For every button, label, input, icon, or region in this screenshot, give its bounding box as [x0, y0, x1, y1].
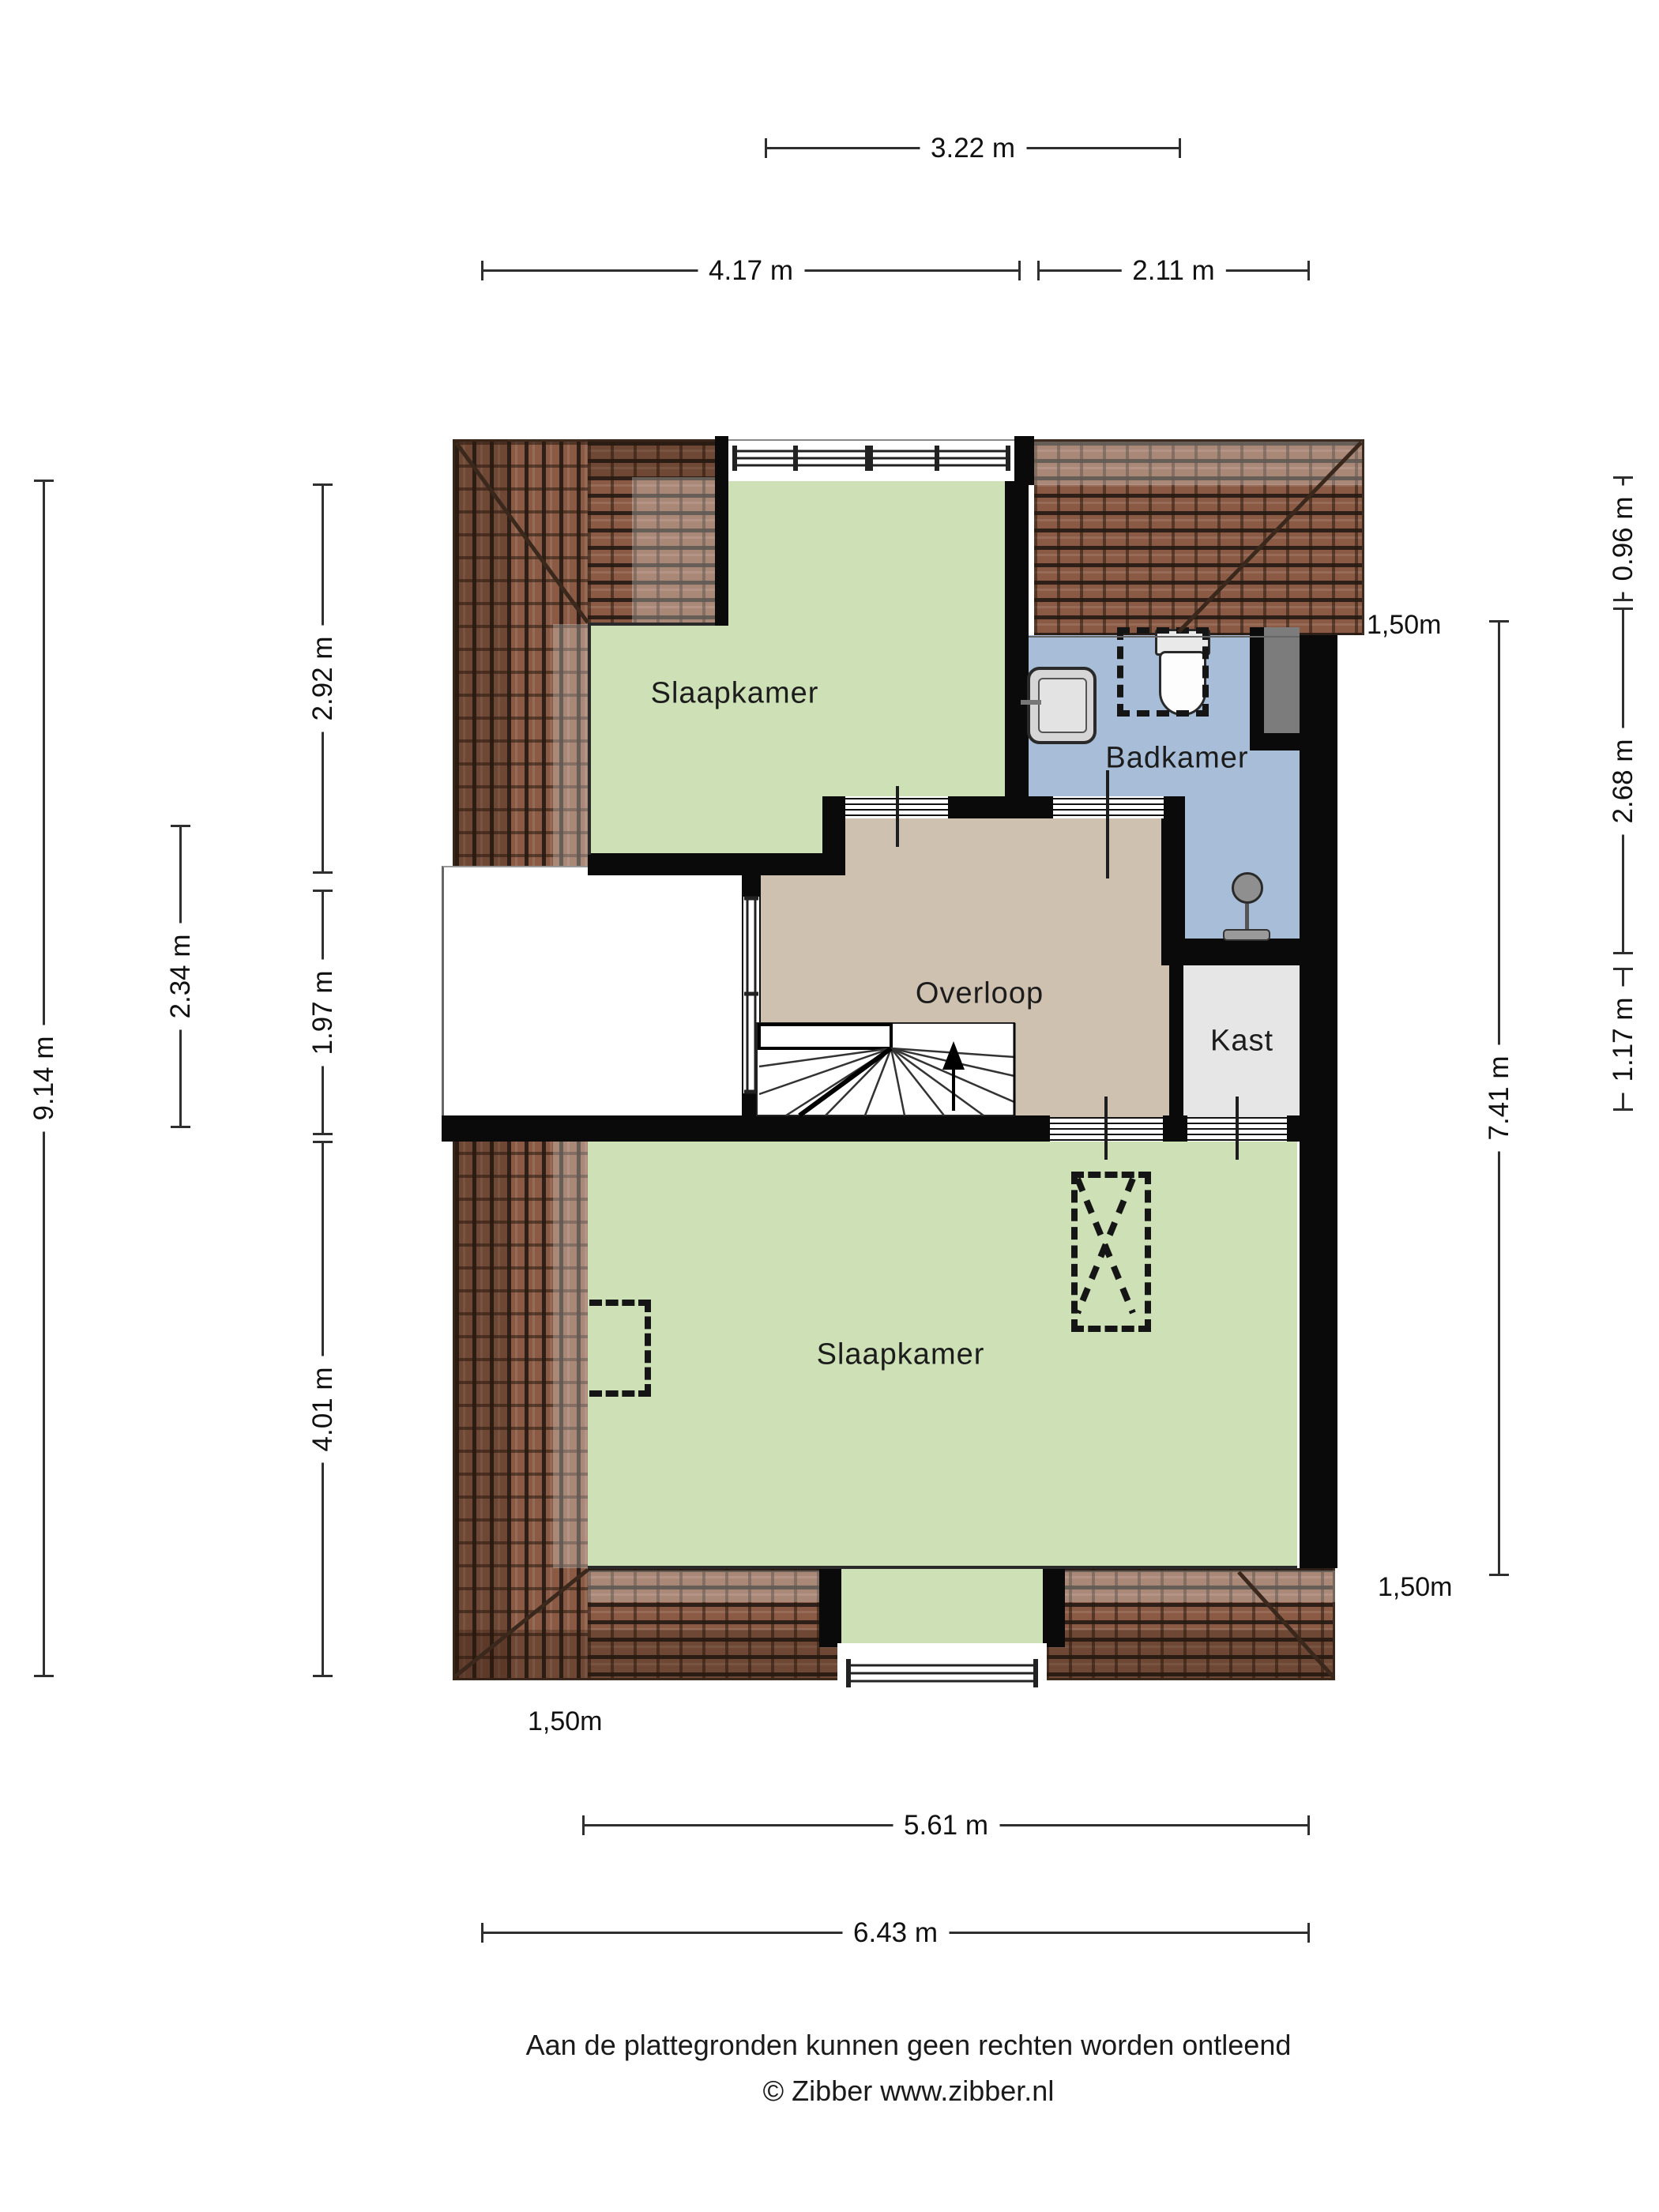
headroom-marker: 1,50m	[528, 1706, 603, 1737]
wall	[1300, 635, 1337, 1568]
dim-left-2-34: 2.34 m	[179, 826, 182, 1127]
bedroom-top-floor	[728, 796, 822, 855]
dim-bottom-5-61: 5.61 m	[583, 1824, 1309, 1826]
footer-credit: © Zibber www.zibber.nl	[118, 2068, 1659, 2114]
dim-label: 9.14 m	[27, 1025, 62, 1132]
door-sill-bedroom-top	[845, 798, 948, 818]
dim-label: 1.97 m	[306, 959, 340, 1066]
door-sill-bathroom	[1053, 798, 1164, 818]
dim-label: 4.17 m	[698, 254, 804, 288]
wall	[1169, 965, 1183, 1120]
wall	[1164, 796, 1185, 818]
washbasin-icon	[1038, 678, 1087, 733]
wall	[1250, 733, 1300, 750]
room-label-landing: Overloop	[916, 977, 1044, 1011]
room-label-bedroom-bottom: Slaapkamer	[817, 1338, 985, 1372]
wall	[715, 436, 728, 626]
landing-floor	[761, 875, 822, 1120]
wall	[822, 796, 845, 875]
dim-right-2-68: 2.68 m	[1622, 608, 1624, 954]
room-label-closet: Kast	[1210, 1025, 1273, 1059]
window-bottom	[837, 1643, 1047, 1697]
floorplan-canvas: Slaapkamer Badkamer Overloop Kast Slaapk…	[0, 0, 1659, 2212]
dim-label: 0.96 m	[1606, 486, 1641, 592]
dim-left-4-01: 4.01 m	[322, 1142, 324, 1676]
wall	[948, 796, 1053, 818]
wall	[1250, 627, 1264, 733]
shower-icon	[1245, 904, 1249, 931]
roof-shade	[455, 1630, 588, 1679]
wall	[1287, 1115, 1337, 1142]
dim-label: 2.11 m	[1121, 254, 1225, 288]
roof-headroom-band	[1034, 442, 1362, 485]
dim-label: 6.43 m	[842, 1916, 949, 1951]
dim-label: 2.34 m	[164, 924, 198, 1030]
dim-right-1-17: 1.17 m	[1622, 969, 1624, 1110]
wall	[1161, 939, 1300, 965]
dim-bottom-6-43: 6.43 m	[482, 1932, 1309, 1934]
bedroom-bottom-floor	[841, 1566, 1043, 1647]
void-area	[442, 866, 743, 1115]
shower-icon	[1223, 929, 1270, 941]
wall	[1005, 439, 1029, 796]
dim-top-4-17: 4.17 m	[482, 269, 1020, 272]
dim-left-1-97: 1.97 m	[322, 890, 324, 1134]
dim-top-2-11: 2.11 m	[1038, 269, 1309, 272]
footer: Aan de plattegronden kunnen geen rechten…	[118, 2022, 1659, 2113]
wall	[819, 1566, 841, 1647]
room-label-bedroom-top: Slaapkamer	[651, 677, 819, 711]
dim-label: 5.61 m	[893, 1808, 999, 1843]
roof-headroom-band	[632, 477, 728, 623]
shower-icon	[1232, 872, 1263, 904]
dim-left-2-92: 2.92 m	[322, 484, 324, 873]
shower-niche-dashed-icon	[1117, 627, 1209, 717]
wall	[1163, 1115, 1187, 1142]
window-void	[743, 897, 759, 1093]
dim-label: 2.92 m	[306, 626, 340, 732]
headroom-marker: 1,50m	[1367, 610, 1442, 641]
wall	[1161, 818, 1185, 939]
roof-shade	[588, 439, 728, 477]
dim-label: 2.68 m	[1606, 728, 1641, 834]
window-top	[728, 439, 1014, 481]
duct-shaft	[1264, 627, 1300, 733]
faucet-icon	[1021, 700, 1041, 705]
room-label-bathroom: Badkamer	[1105, 742, 1248, 776]
bedroom-top-floor	[728, 476, 1005, 796]
wall	[1043, 1566, 1065, 1647]
dim-right-0-96: 0.96 m	[1622, 477, 1624, 600]
dim-label: 1.17 m	[1606, 986, 1641, 1093]
dim-label: 4.01 m	[306, 1356, 340, 1462]
skylight-dashed-icon	[589, 1300, 651, 1397]
bathroom-floor	[1185, 796, 1300, 939]
dim-top-3-22: 3.22 m	[766, 147, 1180, 149]
dim-label: 3.22 m	[920, 131, 1026, 166]
skylight-dashed-icon	[1071, 1172, 1151, 1332]
door-sill-closet	[1187, 1117, 1287, 1142]
door-sill-bedroom-bottom	[1050, 1117, 1163, 1142]
wall	[588, 853, 822, 875]
landing-floor	[822, 818, 1169, 1120]
dim-left-9-14: 9.14 m	[43, 480, 45, 1676]
dim-label: 7.41 m	[1482, 1045, 1517, 1152]
footer-disclaimer: Aan de plattegronden kunnen geen rechten…	[118, 2022, 1659, 2068]
dim-right-7-41: 7.41 m	[1498, 621, 1500, 1575]
headroom-marker: 1,50m	[1378, 1572, 1453, 1603]
bedroom-top-floor	[588, 623, 728, 855]
